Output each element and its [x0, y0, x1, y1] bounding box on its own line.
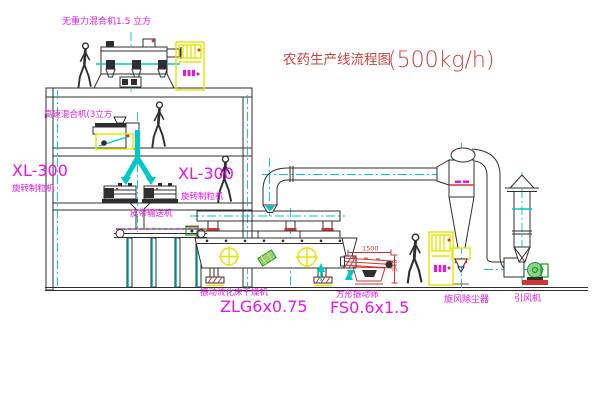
shaft-block-3: [158, 60, 167, 69]
red-dot: [465, 261, 468, 264]
mixer-leg-left: [94, 74, 101, 88]
belt-conveyor: [114, 229, 207, 287]
cabinet-label-mark: [183, 70, 186, 76]
valve-funnel-3: [158, 69, 167, 77]
label-cyclone: 旋风除尘器: [444, 293, 489, 305]
valve-funnel-2: [132, 69, 141, 77]
indicator-light: [448, 239, 451, 242]
granulator-cap: [128, 183, 132, 186]
conveyor-legs: [127, 238, 201, 287]
shaft-block-1: [106, 60, 115, 69]
person-level2: [152, 102, 165, 148]
cyclone-top-cap: [451, 148, 475, 162]
branch-funnel-right: [146, 177, 157, 185]
cabinet-label-mark: [188, 70, 191, 76]
indicator-light: [197, 73, 200, 76]
label-dryer-model: ZLG6x0.75: [220, 297, 308, 316]
label-gravity-mixer: 无重力混合机1.5 立方: [62, 15, 151, 27]
granulator-motor: [104, 188, 114, 198]
elbow-outer: [263, 168, 288, 190]
granulator-cap: [118, 183, 122, 186]
cabinet-label-mark: [443, 265, 446, 272]
floor-slab-2: [53, 148, 252, 156]
dryer-supports: [206, 268, 332, 286]
cyclone-discharge-valve: [452, 248, 470, 259]
sieve-base-block: [362, 270, 377, 277]
person-roof: [78, 43, 91, 88]
red-flange-ring: [322, 228, 334, 231]
stack-rain-cap: [510, 175, 534, 188]
granulator-left: [102, 183, 138, 203]
mixer-top-stub: [106, 41, 114, 47]
dim-length-label: 1500: [362, 245, 379, 253]
label-fan: 引风机: [514, 292, 541, 304]
label-granulator-right-name: 旋转制粒机: [181, 191, 224, 202]
exhaust-duct: [263, 166, 437, 213]
fan-pedestal: [527, 277, 543, 280]
sieve-motor: [386, 261, 393, 268]
label-sieve-model: FS0.6x1.5: [330, 298, 409, 317]
discharge-block-1: [122, 79, 128, 85]
elbow-inner: [277, 180, 288, 190]
y-split-pipe: [121, 158, 157, 185]
diagram-svg: 1500 340: [0, 0, 600, 403]
y-branch-left: [126, 158, 138, 179]
label-granulator-left-model: XL-300: [12, 161, 68, 180]
control-cabinet-ground: [429, 232, 453, 285]
roof-slab: [46, 88, 252, 97]
label-high-speed-mixer: 高速混合机(3立方: [44, 109, 112, 120]
indicator-light: [198, 49, 201, 52]
valve-shaft: [191, 230, 194, 233]
cyclone-tag-mark: [455, 181, 461, 184]
sieve-left-cap: [341, 257, 345, 266]
cyclone-outlet-duct: [472, 149, 524, 277]
red-dot: [156, 188, 159, 191]
red-dot: [127, 135, 130, 138]
label-granulator-left-name: 旋转制粒机: [12, 183, 55, 194]
diagram-capacity: (500kg/h): [388, 48, 494, 73]
granulator-base: [102, 199, 138, 203]
cabinet-label-mark: [192, 70, 195, 76]
cabinet-vent-panel: [432, 235, 450, 251]
fan-scroll: [528, 263, 543, 278]
mixer-side-pipe: [167, 49, 180, 57]
cyclone-drip-funnel: [458, 267, 464, 272]
red-dot: [455, 261, 458, 264]
person-ground: [408, 234, 422, 283]
y-branch-right: [138, 158, 151, 179]
fan-base-red: [522, 280, 548, 285]
fluid-bed-dryer: [195, 211, 357, 286]
diagram-title: 农药生产线流程图: [283, 52, 391, 68]
cyclone-tag-mark: [463, 181, 469, 184]
granulator-cap: [168, 183, 172, 186]
dryer-hood: [197, 231, 340, 238]
valve-funnel-1: [106, 69, 115, 77]
granulator-motor: [144, 188, 154, 198]
granulator-right: [142, 183, 178, 203]
indicator-light: [448, 267, 451, 270]
granulator-cap: [158, 183, 162, 186]
cabinet-label-mark: [439, 265, 442, 272]
mixer2-hopper: [114, 117, 126, 123]
discharge-block-2: [131, 79, 137, 85]
pesticide-line-flow-diagram: 1500 340: [0, 0, 600, 403]
red-dot: [116, 188, 119, 191]
shaft-block-2: [132, 60, 141, 69]
induced-draft-fan: [522, 263, 548, 286]
label-granulator-right-model: XL-300: [178, 164, 234, 183]
granulator-base: [142, 199, 178, 203]
high-speed-mixer: [93, 117, 139, 162]
mixer2-pulley: [101, 140, 107, 146]
label-belt-conveyor: 皮带输送机: [130, 208, 173, 219]
red-flange-ring: [207, 228, 220, 231]
gravity-free-mixer: [94, 39, 181, 88]
cyclone-inlet: [437, 160, 449, 185]
red-flange-ring: [285, 228, 297, 231]
mixer-leg-right: [167, 74, 174, 88]
cabinet-label-mark: [434, 265, 437, 272]
cyclone-barrel: [449, 160, 474, 197]
cyclone-dust-collector: [437, 148, 475, 284]
belt-pulley-left: [116, 230, 124, 238]
red-dot: [152, 40, 155, 43]
